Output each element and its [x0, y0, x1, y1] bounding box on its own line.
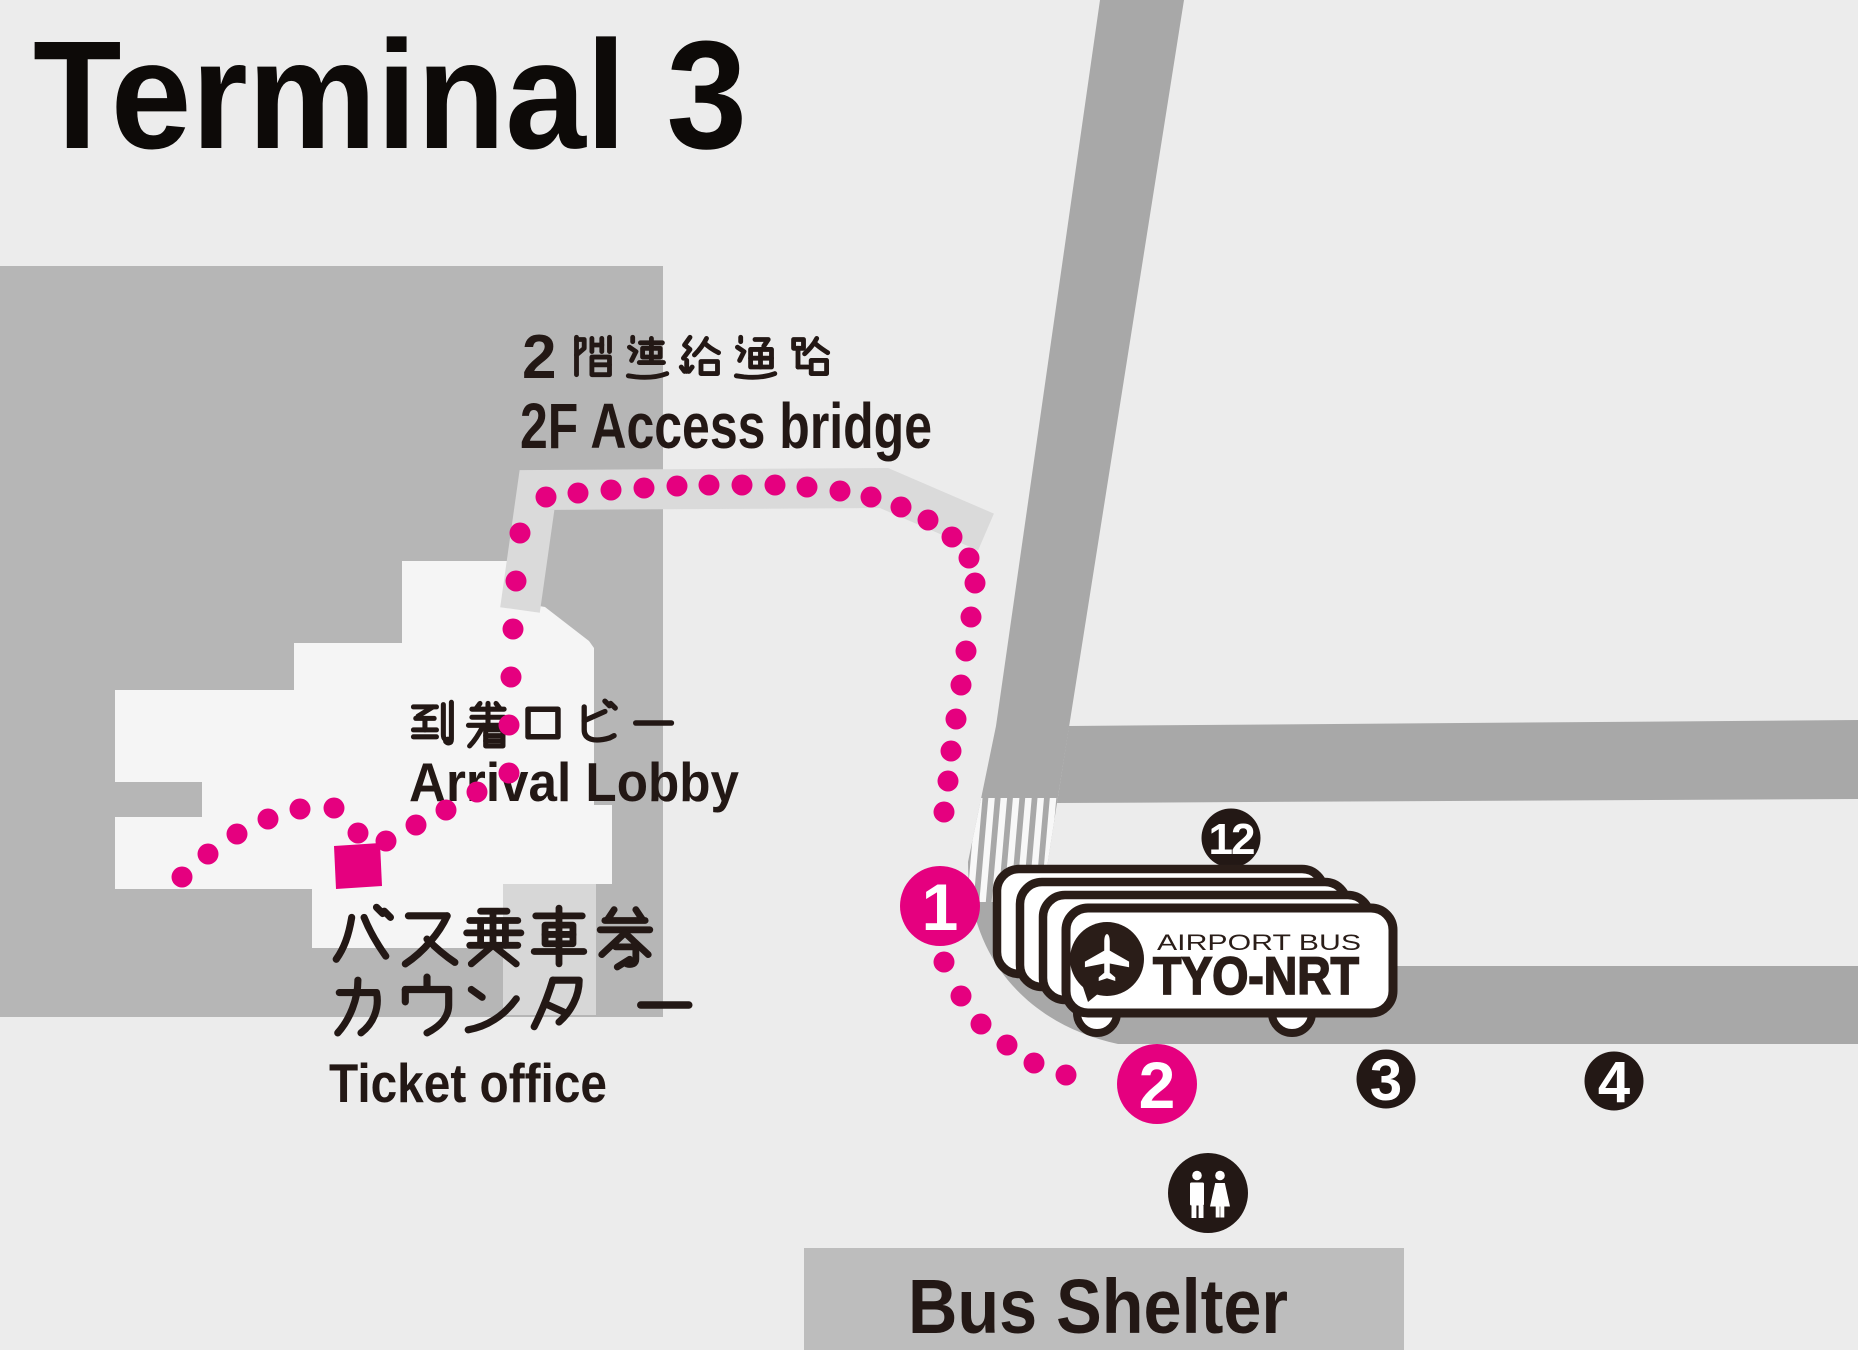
svg-text:2: 2 — [1139, 1048, 1176, 1122]
svg-text:3: 3 — [1370, 1048, 1402, 1113]
svg-text:1: 1 — [922, 870, 959, 944]
svg-text:2F Access bridge: 2F Access bridge — [520, 390, 932, 462]
svg-text:Ticket office: Ticket office — [329, 1052, 607, 1114]
svg-text:TYO-NRT: TYO-NRT — [1153, 947, 1359, 1006]
svg-text:Arrival Lobby: Arrival Lobby — [409, 751, 739, 813]
svg-text:2: 2 — [522, 323, 556, 392]
svg-text:12: 12 — [1209, 815, 1254, 864]
svg-text:Terminal 3: Terminal 3 — [33, 9, 747, 181]
svg-text:4: 4 — [1598, 1050, 1630, 1115]
svg-text:Bus Shelter: Bus Shelter — [908, 1264, 1288, 1350]
